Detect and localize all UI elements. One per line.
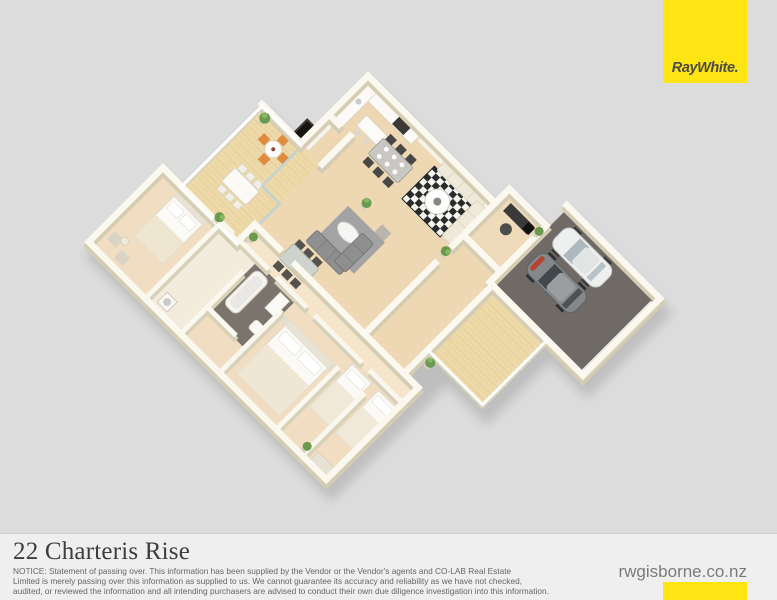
property-address: 22 Charteris Rise	[13, 538, 190, 566]
agency-website: rwgisborne.co.nz	[618, 562, 747, 582]
footer-band: 22 Charteris Rise NOTICE: Statement of p…	[0, 533, 777, 600]
notice-line: audited, or reviewed the information and…	[13, 586, 573, 596]
yellow-footer-bar	[663, 582, 747, 600]
notice-line: NOTICE: Statement of passing over. This …	[13, 566, 573, 576]
notice-line: Limited is merely passing over this info…	[13, 576, 573, 586]
raywhite-logo-text: RayWhite.	[663, 60, 747, 76]
floorplan-render	[0, 0, 777, 533]
flyer-canvas: RayWhite. 22 Charteris Rise NOTICE: Stat…	[0, 0, 777, 600]
raywhite-logo: RayWhite.	[663, 0, 747, 83]
disclaimer-notice: NOTICE: Statement of passing over. This …	[13, 566, 573, 596]
